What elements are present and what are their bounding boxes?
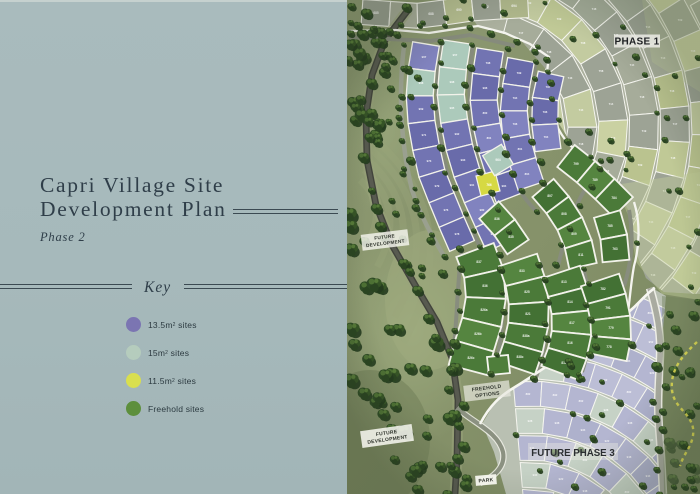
svg-text:FUTURE PHASE 3: FUTURE PHASE 3: [531, 448, 615, 459]
svg-text:PHASE 1: PHASE 1: [615, 37, 660, 48]
